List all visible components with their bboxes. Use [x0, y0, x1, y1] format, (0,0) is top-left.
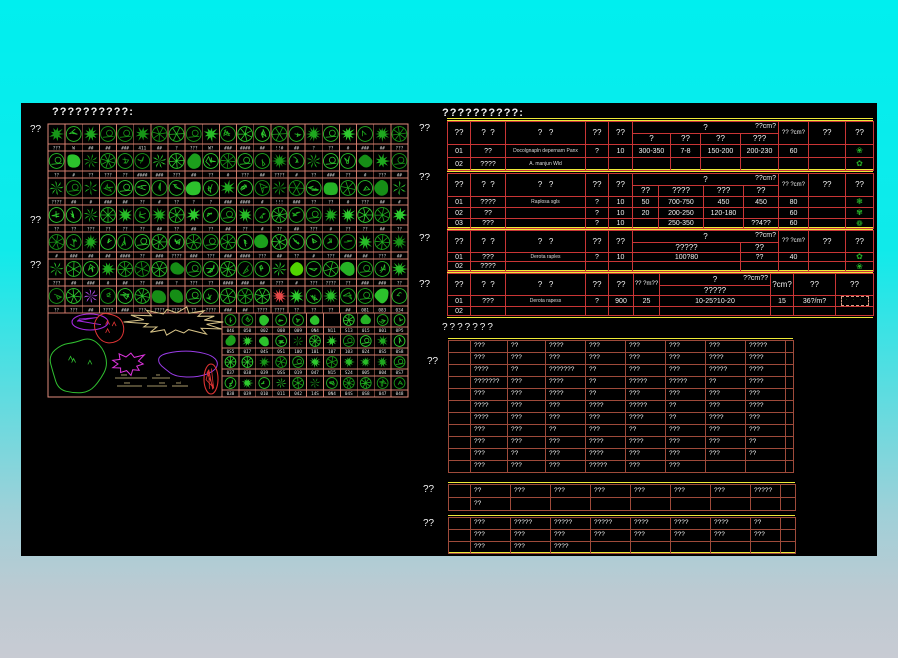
plant-symbol — [225, 378, 236, 389]
plant-symbol — [394, 378, 405, 389]
table-row: 01??Docolgnapln depernarn Panx?10300-350… — [448, 145, 874, 158]
plant-symbol — [324, 182, 338, 195]
cell-label: # — [398, 199, 401, 205]
table-cell: ??? — [471, 530, 511, 542]
table-cell — [449, 365, 471, 377]
table-cell: ??? — [591, 485, 631, 498]
plant-symbol — [377, 378, 388, 389]
plant-symbol — [169, 235, 184, 250]
table-cell — [449, 449, 471, 461]
table-cell: 100?80 — [633, 253, 741, 262]
cell-label: 039 — [260, 370, 268, 376]
cell-label: 038 — [243, 370, 251, 376]
cell-label: ???? — [171, 253, 182, 259]
table-cell — [609, 158, 633, 171]
table-cell: ?? — [609, 122, 633, 145]
table-cell: ?? — [448, 231, 471, 253]
table-cell: 60 — [779, 219, 809, 229]
plant-symbol — [152, 235, 167, 250]
cell-label: ### — [378, 280, 386, 286]
table-cell: ?cm? — [771, 274, 794, 296]
plant-symbol — [101, 154, 116, 169]
plant-symbol — [310, 315, 320, 325]
table-cell — [786, 353, 794, 365]
table-cell: ? ? — [506, 231, 586, 253]
table-cell — [634, 307, 660, 316]
table-cell: ??? — [666, 389, 706, 401]
plant-symbol — [393, 181, 406, 196]
plant-symbol — [84, 208, 99, 223]
summary-table-1: ??????????????????????????? — [448, 484, 796, 511]
cell-label: ## — [71, 280, 77, 286]
cell-label: ?? — [208, 226, 214, 232]
table-cell: ?? — [586, 365, 626, 377]
section-label: ?? — [419, 279, 430, 290]
cell-label: 024 — [362, 349, 370, 355]
plant-symbol — [276, 357, 287, 368]
table-cell — [786, 365, 794, 377]
section-label: ?? — [419, 123, 430, 134]
table-cell: ??? — [626, 461, 666, 473]
cell-label: ? — [312, 145, 315, 151]
cell-label: # — [295, 280, 298, 286]
plant-symbol — [306, 262, 321, 277]
table-cell: ??? — [711, 530, 751, 542]
table-row: ??? ?? ????????cm??? ?cm????? — [448, 231, 874, 243]
tree-schedule-2: ??? ?? ????????cm??? ?cm????????????????… — [447, 173, 874, 229]
cell-label: 0S5 — [227, 349, 235, 355]
table-cell: ???? — [586, 437, 626, 449]
table-cell: ??? — [671, 485, 711, 498]
table-cell — [786, 425, 794, 437]
cell-label: ?? — [243, 226, 249, 232]
cell-label: ?? — [54, 307, 60, 313]
dashed-area-icon: · · · — [841, 296, 869, 306]
cell-label: 019 — [294, 370, 302, 376]
table-cell — [786, 341, 794, 353]
table-row: 02 — [448, 307, 874, 316]
cell-label: 050 — [243, 328, 251, 334]
cell-label: ## — [363, 253, 369, 259]
plant-icon-cell: ✾ — [846, 208, 874, 219]
table-cell: ?? — [586, 231, 609, 253]
table-cell — [786, 461, 794, 473]
plant-icon-cell: ✿ — [846, 158, 874, 171]
shrub-outlines — [50, 307, 223, 394]
cell-label: ?? — [174, 226, 180, 232]
table-cell — [449, 498, 471, 511]
cell-label: # — [227, 172, 230, 178]
cell-label: ??? — [53, 145, 61, 151]
plant-symbol — [323, 288, 338, 303]
cell-label: ?? — [345, 280, 351, 286]
plant-symbol — [186, 235, 201, 250]
table-row: ??? ?? ??????? ?m?????cm???cm????? — [448, 274, 874, 286]
plant-symbol — [151, 207, 166, 223]
table-cell — [809, 158, 846, 171]
table-cell: ?? — [508, 341, 546, 353]
table-cell — [449, 542, 471, 554]
plant-symbol — [306, 208, 321, 223]
table-cell: ???? — [546, 341, 586, 353]
table-cell — [704, 219, 744, 229]
table-cell: ??? — [471, 219, 506, 229]
table-cell — [706, 461, 746, 473]
cell-label: ??? — [258, 253, 266, 259]
table-cell: 7-8 — [671, 145, 701, 158]
plant-symbol — [169, 208, 184, 223]
table-cell — [751, 498, 781, 511]
cell-label: ??? — [53, 280, 61, 286]
plant-symbol — [66, 235, 81, 250]
table-cell: ? ? — [471, 122, 506, 145]
table-cell: ? — [586, 296, 609, 307]
table-cell: ? ? — [506, 122, 586, 145]
table-cell: 02 — [448, 307, 471, 316]
plant-symbol — [220, 180, 235, 195]
table-cell — [449, 530, 471, 542]
plant-symbol — [394, 336, 405, 347]
table-cell: ? ? — [506, 174, 586, 197]
cad-model-space[interactable]: ???W#######411##????W?#########!!###???#… — [21, 103, 877, 556]
cell-label: ??? — [396, 145, 404, 151]
table-cell: ????? — [706, 365, 746, 377]
table-cell: ??? — [626, 389, 666, 401]
cell-label: # — [261, 199, 264, 205]
cell-label: ### — [327, 172, 335, 178]
cell-label: W — [72, 145, 75, 151]
table-cell: ? — [586, 145, 609, 158]
plant-symbol — [187, 153, 201, 169]
cell-label: ### — [121, 307, 129, 313]
table-cell: 50 — [633, 197, 659, 208]
yellow-rule — [447, 118, 873, 119]
cell-label: 0SS — [277, 370, 285, 376]
cell-label: 008 — [277, 328, 285, 334]
cell-label: ### — [156, 253, 164, 259]
cell-label: ## — [380, 145, 386, 151]
shrub-schedule-3: ??? ?? ????????cm??? ?cm????????????01??… — [447, 230, 874, 272]
table-cell: ?? — [751, 518, 781, 530]
cell-label: ### — [121, 145, 129, 151]
table-cell — [506, 307, 586, 316]
table-cell: ??4?? — [744, 219, 779, 229]
table-cell: ?? — [846, 174, 874, 197]
table-cell: ?? — [666, 401, 706, 413]
table-cell: ???? — [659, 186, 704, 197]
table-cell: ???? — [471, 262, 506, 272]
plant-symbol — [343, 315, 354, 326]
section-label: ?? — [30, 124, 41, 135]
table-cell: ??????? — [546, 365, 586, 377]
plant-symbol — [358, 262, 373, 277]
table-cell: ???? — [586, 401, 626, 413]
plant-symbol — [225, 315, 236, 326]
plant-symbol — [204, 128, 220, 143]
table-row: ????????????????????????? — [449, 437, 794, 449]
table-row: ?????????????????????????? — [449, 413, 794, 425]
plant-symbol — [101, 235, 116, 250]
groundcover-schedule-4: ??? ?? ??????? ?m?????cm???cm??????????0… — [447, 273, 874, 316]
cell-label: 0S1 — [277, 349, 285, 355]
plant-glyph-icon: ✿ — [856, 253, 863, 262]
table-cell: 700-750 — [659, 197, 704, 208]
cell-label: ?? — [140, 280, 146, 286]
plant-symbol — [170, 289, 183, 302]
table-cell — [591, 542, 631, 554]
cell-label: ?? — [140, 199, 146, 205]
plant-symbol — [392, 262, 408, 276]
table-cell: ?? — [609, 274, 634, 296]
cell-label: ?? — [311, 199, 317, 205]
plant-symbol — [255, 289, 270, 304]
cell-label: # — [261, 226, 264, 232]
plant-symbol — [135, 154, 150, 169]
table-row: ?????????????????????????? — [449, 341, 794, 353]
cell-label: 0N4 — [311, 328, 319, 334]
cell-label: #### — [223, 280, 234, 286]
table-row: 01???Derota raples?10100?80??40✿ — [448, 253, 874, 262]
plant-symbol — [358, 155, 372, 168]
plant-symbol — [221, 154, 236, 169]
notes-table: ????????????????????????????????????????… — [448, 340, 794, 473]
section-label: ?? — [419, 172, 430, 183]
cell-label: # — [347, 199, 350, 205]
table-cell — [781, 498, 796, 511]
table-cell: ?? ?cm? — [779, 231, 809, 253]
table-cell — [471, 307, 506, 316]
table-row: 01????Raplosa sgls?1050700-75045045080❃ — [448, 197, 874, 208]
table-row: ???????????????????????????????? — [449, 518, 796, 530]
table-row: ???????????????????????? — [449, 389, 794, 401]
table-cell: ?? — [471, 145, 506, 158]
cell-label: !!! — [276, 199, 284, 205]
cell-label: ??? — [104, 172, 112, 178]
table-cell: ??? — [471, 353, 508, 365]
table-cell — [809, 197, 846, 208]
table-cell: ??? — [551, 530, 591, 542]
table-cell: ????? — [746, 341, 786, 353]
plant-symbol — [203, 181, 218, 196]
table-cell: ??? — [746, 425, 786, 437]
plant-symbol — [310, 356, 321, 368]
cell-label: ?? — [105, 226, 111, 232]
cell-label: 039 — [243, 391, 251, 397]
cell-label: 107 — [328, 349, 336, 355]
table-cell: ?? — [666, 413, 706, 425]
table-cell: ? ? — [471, 274, 506, 296]
table-cell: ??? — [471, 425, 508, 437]
table-cell: ???? — [626, 413, 666, 425]
table-cell: ??? — [666, 365, 706, 377]
section-label: ?? — [423, 518, 434, 529]
cell-label: ## — [191, 172, 197, 178]
cell-label: ???? — [206, 307, 217, 313]
table-cell: ? ? — [506, 274, 586, 296]
cell-label: ?? — [311, 172, 317, 178]
table-cell: ??? — [546, 401, 586, 413]
table-cell — [771, 307, 794, 316]
table-cell — [586, 158, 609, 171]
cell-label: # — [330, 226, 333, 232]
table-cell: 10-25?10-20 — [660, 296, 771, 307]
table-cell — [781, 518, 796, 530]
table-cell: ??? — [508, 401, 546, 413]
table-cell: ??? — [591, 530, 631, 542]
table-cell: ?? — [671, 134, 701, 145]
cell-label: ### — [224, 199, 232, 205]
yellow-rule — [448, 515, 795, 516]
table-cell — [449, 389, 471, 401]
plant-symbol — [221, 127, 236, 142]
table-cell: ??? — [471, 542, 511, 554]
table-cell: ????? — [511, 518, 551, 530]
table-cell: 20 — [633, 208, 659, 219]
cell-label: 0S8 — [362, 391, 370, 397]
cell-label: 001 — [379, 328, 387, 334]
cell-label: # — [295, 172, 298, 178]
cell-label: 038 — [227, 391, 235, 397]
svg-text:xxl: xxl — [176, 380, 181, 385]
cell-label: ### — [224, 145, 232, 151]
yellow-rule — [447, 171, 873, 172]
table-cell: ??? — [741, 134, 779, 145]
section-label: ?? — [30, 215, 41, 226]
table-cell: 450 — [704, 197, 744, 208]
table-cell — [449, 437, 471, 449]
table-row: 03????10250-350??4??60❁ — [448, 219, 874, 229]
table-cell: ??? — [586, 341, 626, 353]
cell-label: 037 — [227, 370, 235, 376]
cell-label: ??? — [70, 307, 78, 313]
table-cell — [631, 542, 671, 554]
table-cell: 03 — [448, 219, 471, 229]
plant-symbol — [118, 181, 133, 196]
plant-symbol — [135, 289, 150, 304]
table-cell: ?? — [546, 425, 586, 437]
table-cell: A. manjun Wld — [506, 158, 586, 171]
plant-symbol — [392, 234, 406, 249]
table-cell — [449, 461, 471, 473]
table-cell — [631, 498, 671, 511]
table-cell: ?? — [846, 231, 874, 253]
table-cell — [786, 377, 794, 389]
table-cell: ??? — [586, 353, 626, 365]
table-cell: ???? — [471, 197, 506, 208]
plant-symbol — [135, 235, 150, 250]
plant-icon-cell: · · · — [836, 296, 874, 307]
table-cell — [744, 208, 779, 219]
plant-symbol — [276, 378, 287, 389]
plant-symbol — [323, 127, 338, 142]
cell-label: ## — [88, 307, 94, 313]
table-row: ???????????????????? — [449, 461, 794, 473]
table-cell: 01 — [448, 296, 471, 307]
table-cell: ? — [586, 208, 609, 219]
plant-symbol — [186, 289, 201, 304]
table-cell: ?? — [471, 485, 511, 498]
plant-symbol — [186, 127, 201, 142]
table-cell — [591, 498, 631, 511]
cell-label: ### — [241, 280, 249, 286]
cell-label: ## — [380, 226, 386, 232]
table-cell: ???? — [471, 413, 508, 425]
table-cell: ??? — [631, 485, 671, 498]
plant-symbol — [374, 180, 388, 196]
table-cell: Derota rapess — [506, 296, 586, 307]
table-cell — [809, 145, 846, 158]
table-cell: ????? — [591, 518, 631, 530]
table-cell — [836, 307, 874, 316]
plant-symbol — [169, 154, 184, 169]
plant-icon-cell: ❀ — [846, 145, 874, 158]
plant-symbol — [118, 127, 133, 142]
plant-symbol — [259, 378, 270, 389]
table-cell — [786, 401, 794, 413]
table-cell — [809, 262, 846, 272]
table-cell: ? ? — [471, 174, 506, 197]
plant-symbol — [255, 181, 270, 196]
plant-symbol — [360, 315, 370, 325]
plant-symbol — [83, 262, 98, 277]
plant-symbol — [272, 127, 287, 142]
table-cell: ????? — [751, 485, 781, 498]
cell-label: ### — [70, 253, 78, 259]
table-cell: 01 — [448, 145, 471, 158]
cell-label: ?? — [294, 253, 300, 259]
table-row: ?????????????????????????? — [449, 353, 794, 365]
cell-label: ## — [88, 145, 94, 151]
table-cell: ??? — [626, 341, 666, 353]
plant-symbol — [375, 262, 390, 277]
cell-label: ## — [157, 226, 163, 232]
right-panel-subtitle: ??????? — [442, 322, 495, 333]
plant-symbol — [169, 127, 184, 142]
table-cell: 10 — [609, 208, 633, 219]
plant-symbol — [118, 154, 133, 169]
table-cell: ?? — [448, 274, 471, 296]
plant-symbol — [290, 262, 303, 276]
table-cell — [506, 208, 586, 219]
table-cell — [551, 498, 591, 511]
table-cell: ???cm?? — [660, 274, 771, 286]
table-cell: ??? — [706, 389, 746, 401]
cell-label: #### — [240, 145, 251, 151]
plant-symbol — [238, 181, 253, 196]
plant-symbol — [272, 181, 287, 196]
plant-symbol — [49, 127, 64, 141]
cell-label: ### — [361, 145, 369, 151]
cell-label: ## — [380, 199, 386, 205]
plant-symbol — [49, 181, 64, 196]
table-cell: ??? — [631, 530, 671, 542]
table-cell — [511, 498, 551, 511]
plant-symbol — [360, 336, 371, 347]
cell-label: 103 — [345, 349, 353, 355]
table-cell: ??? — [746, 389, 786, 401]
plant-symbol — [272, 235, 287, 250]
table-cell: 450 — [744, 197, 779, 208]
table-cell: ???? — [551, 542, 591, 554]
plant-symbol — [293, 336, 303, 347]
cell-label: ??? — [310, 280, 318, 286]
cell-label: ## — [105, 145, 111, 151]
cell-label: ?? — [208, 280, 214, 286]
table-cell: ?? ?cm? — [779, 174, 809, 197]
table-cell: 60 — [779, 208, 809, 219]
magenta-shrub-cloud — [113, 353, 145, 375]
table-row: ???????????????????????? — [449, 530, 796, 542]
